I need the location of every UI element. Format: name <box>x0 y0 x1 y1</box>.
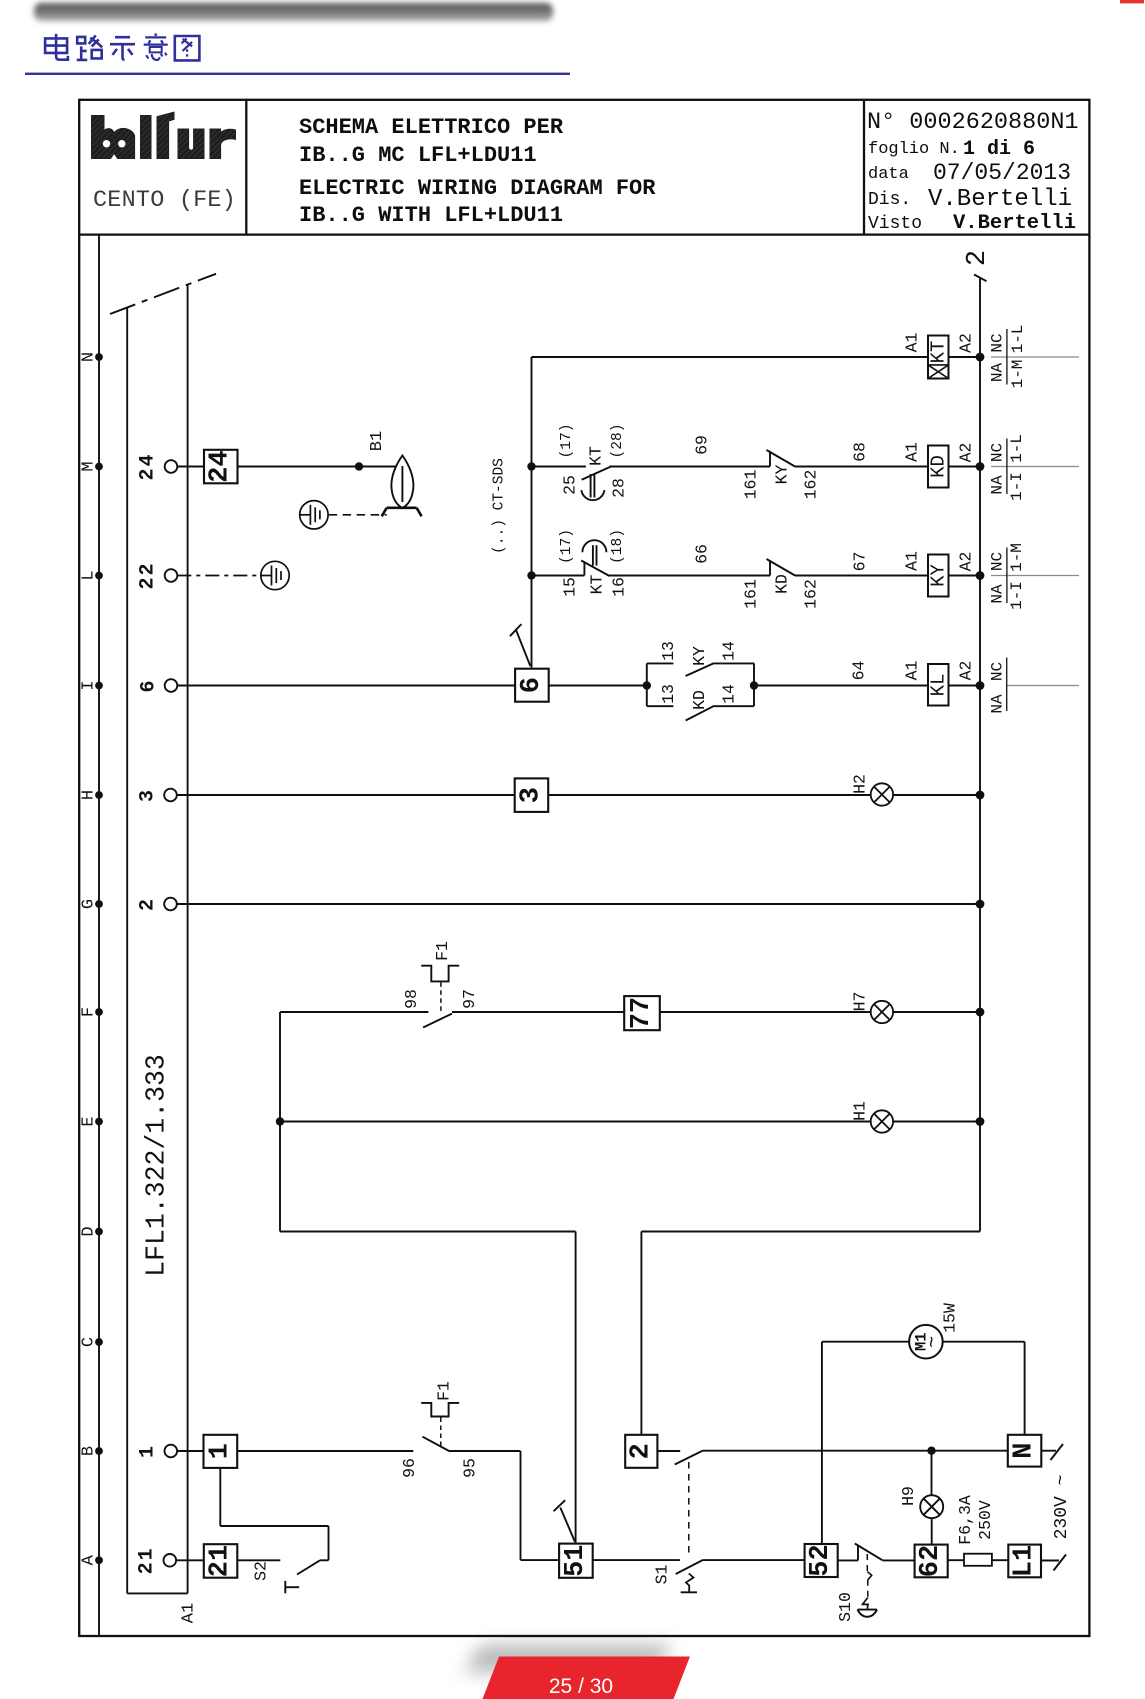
svg-text:1: 1 <box>205 1443 235 1459</box>
svg-text:NC: NC <box>989 662 1007 681</box>
svg-text:NA: NA <box>989 363 1007 383</box>
svg-text:foglio N.: foglio N. <box>868 140 960 159</box>
svg-text:13: 13 <box>659 684 678 704</box>
svg-text:1-L: 1-L <box>1008 434 1026 463</box>
svg-text:Dis.: Dis. <box>868 190 911 210</box>
svg-text:1: 1 <box>137 1444 160 1458</box>
svg-text:H2: H2 <box>851 774 870 794</box>
svg-text:KD: KD <box>690 690 709 710</box>
svg-text:A1: A1 <box>903 442 922 462</box>
svg-text:1-I: 1-I <box>1008 472 1026 501</box>
svg-text:97: 97 <box>460 989 479 1009</box>
svg-text:230V ~: 230V ~ <box>1052 1475 1072 1540</box>
svg-text:68: 68 <box>851 442 870 462</box>
svg-text:NC: NC <box>989 552 1007 571</box>
svg-text:KD: KD <box>773 574 792 594</box>
svg-text:A1: A1 <box>180 1603 199 1623</box>
svg-text:15: 15 <box>561 577 580 597</box>
svg-text:S2: S2 <box>252 1561 271 1581</box>
svg-text:161: 161 <box>742 470 761 500</box>
svg-text:H7: H7 <box>851 992 870 1012</box>
svg-text:H9: H9 <box>899 1486 918 1506</box>
svg-text:51: 51 <box>561 1544 591 1576</box>
svg-text:2: 2 <box>137 897 160 911</box>
svg-text:3: 3 <box>516 787 546 803</box>
svg-text:LFL1.322/1.333: LFL1.322/1.333 <box>142 1054 172 1277</box>
svg-text:ELECTRIC WIRING DIAGRAM FOR: ELECTRIC WIRING DIAGRAM FOR <box>299 176 656 201</box>
svg-text:1 di 6: 1 di 6 <box>963 138 1035 161</box>
svg-text:A1: A1 <box>903 333 922 353</box>
svg-text:6: 6 <box>517 677 547 693</box>
svg-text:14: 14 <box>720 684 739 704</box>
svg-text:250V: 250V <box>976 1500 995 1540</box>
svg-text:95: 95 <box>461 1458 480 1478</box>
svg-text:NC: NC <box>989 443 1007 462</box>
svg-text:(..) CT-SDS: (..) CT-SDS <box>491 458 507 554</box>
svg-text:64: 64 <box>850 661 869 681</box>
svg-text:69: 69 <box>693 435 712 455</box>
svg-text:25: 25 <box>561 475 580 495</box>
svg-text:F1: F1 <box>435 1381 454 1401</box>
svg-text:A2: A2 <box>957 552 976 572</box>
svg-text:22: 22 <box>137 561 160 589</box>
svg-text:S1: S1 <box>653 1565 672 1585</box>
svg-text:NA: NA <box>989 475 1007 495</box>
svg-text:A1: A1 <box>903 551 922 571</box>
svg-text:KY: KY <box>690 646 709 666</box>
svg-text:67: 67 <box>851 552 870 572</box>
svg-text:N° 0002620880N1: N° 0002620880N1 <box>867 109 1079 136</box>
svg-text:KY: KY <box>773 465 792 485</box>
svg-text:2: 2 <box>626 1443 656 1459</box>
svg-text:1-M: 1-M <box>1008 543 1026 572</box>
svg-text:KT: KT <box>587 446 606 466</box>
svg-text:KD: KD <box>927 455 949 478</box>
svg-text:24: 24 <box>137 452 160 480</box>
svg-text:(28): (28) <box>610 424 626 459</box>
svg-text:NA: NA <box>989 694 1007 714</box>
svg-text:F1: F1 <box>433 941 452 961</box>
svg-text:KL: KL <box>927 674 949 697</box>
svg-text:14: 14 <box>720 641 739 661</box>
svg-text:data: data <box>868 165 909 184</box>
svg-text:07/05/2013: 07/05/2013 <box>933 160 1071 186</box>
svg-text:V.Bertelli: V.Bertelli <box>928 186 1072 213</box>
svg-text:98: 98 <box>402 989 421 1009</box>
svg-text:A2: A2 <box>957 333 976 353</box>
svg-text:3: 3 <box>137 788 160 802</box>
svg-text:62: 62 <box>916 1545 946 1577</box>
svg-text:15W: 15W <box>941 1303 960 1333</box>
svg-text:KT: KT <box>927 341 949 364</box>
svg-text:21: 21 <box>206 1545 236 1577</box>
svg-text:IB..G MC LFL+LDU11: IB..G MC LFL+LDU11 <box>299 143 537 168</box>
svg-text:CENTO (FE): CENTO (FE) <box>93 187 236 214</box>
svg-text:66: 66 <box>693 544 712 564</box>
svg-text:S10: S10 <box>836 1592 855 1622</box>
svg-text:L1: L1 <box>1010 1545 1040 1577</box>
svg-text:1-L: 1-L <box>1009 325 1027 354</box>
svg-text:SCHEMA ELETTRICO PER: SCHEMA ELETTRICO PER <box>299 115 564 140</box>
svg-text:H1: H1 <box>851 1101 870 1121</box>
svg-text:24: 24 <box>206 450 236 482</box>
svg-text:Visto: Visto <box>868 214 922 234</box>
svg-text:13: 13 <box>659 641 678 661</box>
svg-text:(17): (17) <box>559 424 575 459</box>
svg-text:N: N <box>1010 1443 1040 1459</box>
svg-text:A1: A1 <box>903 661 922 681</box>
svg-text:25 / 30: 25 / 30 <box>549 1675 613 1698</box>
svg-text:162: 162 <box>802 470 821 500</box>
svg-text:96: 96 <box>400 1458 419 1478</box>
svg-text:F6,3A: F6,3A <box>956 1495 975 1545</box>
svg-text:16: 16 <box>610 577 629 597</box>
svg-text:(17): (17) <box>559 529 575 564</box>
svg-text:21: 21 <box>136 1546 159 1574</box>
svg-text:161: 161 <box>742 579 761 609</box>
svg-text:(18): (18) <box>610 529 626 564</box>
svg-text:B1: B1 <box>368 431 387 451</box>
svg-text:KY: KY <box>927 564 949 587</box>
svg-text:A2: A2 <box>957 443 976 463</box>
svg-text:NC: NC <box>989 333 1007 352</box>
svg-text:1-M: 1-M <box>1009 360 1027 389</box>
svg-text:52: 52 <box>806 1544 836 1576</box>
svg-text:~: ~ <box>922 1336 945 1348</box>
svg-text:NA: NA <box>989 584 1007 604</box>
svg-text:2: 2 <box>963 250 993 266</box>
svg-text:77: 77 <box>627 997 657 1029</box>
svg-text:V.Bertelli: V.Bertelli <box>953 212 1076 235</box>
svg-text:1-I: 1-I <box>1008 581 1026 610</box>
svg-text:162: 162 <box>802 579 821 609</box>
svg-text:IB..G WITH LFL+LDU11: IB..G WITH LFL+LDU11 <box>299 203 563 228</box>
svg-text:KT: KT <box>588 575 607 595</box>
svg-text:28: 28 <box>610 478 629 498</box>
svg-text:A2: A2 <box>957 661 976 681</box>
svg-text:6: 6 <box>138 678 161 692</box>
